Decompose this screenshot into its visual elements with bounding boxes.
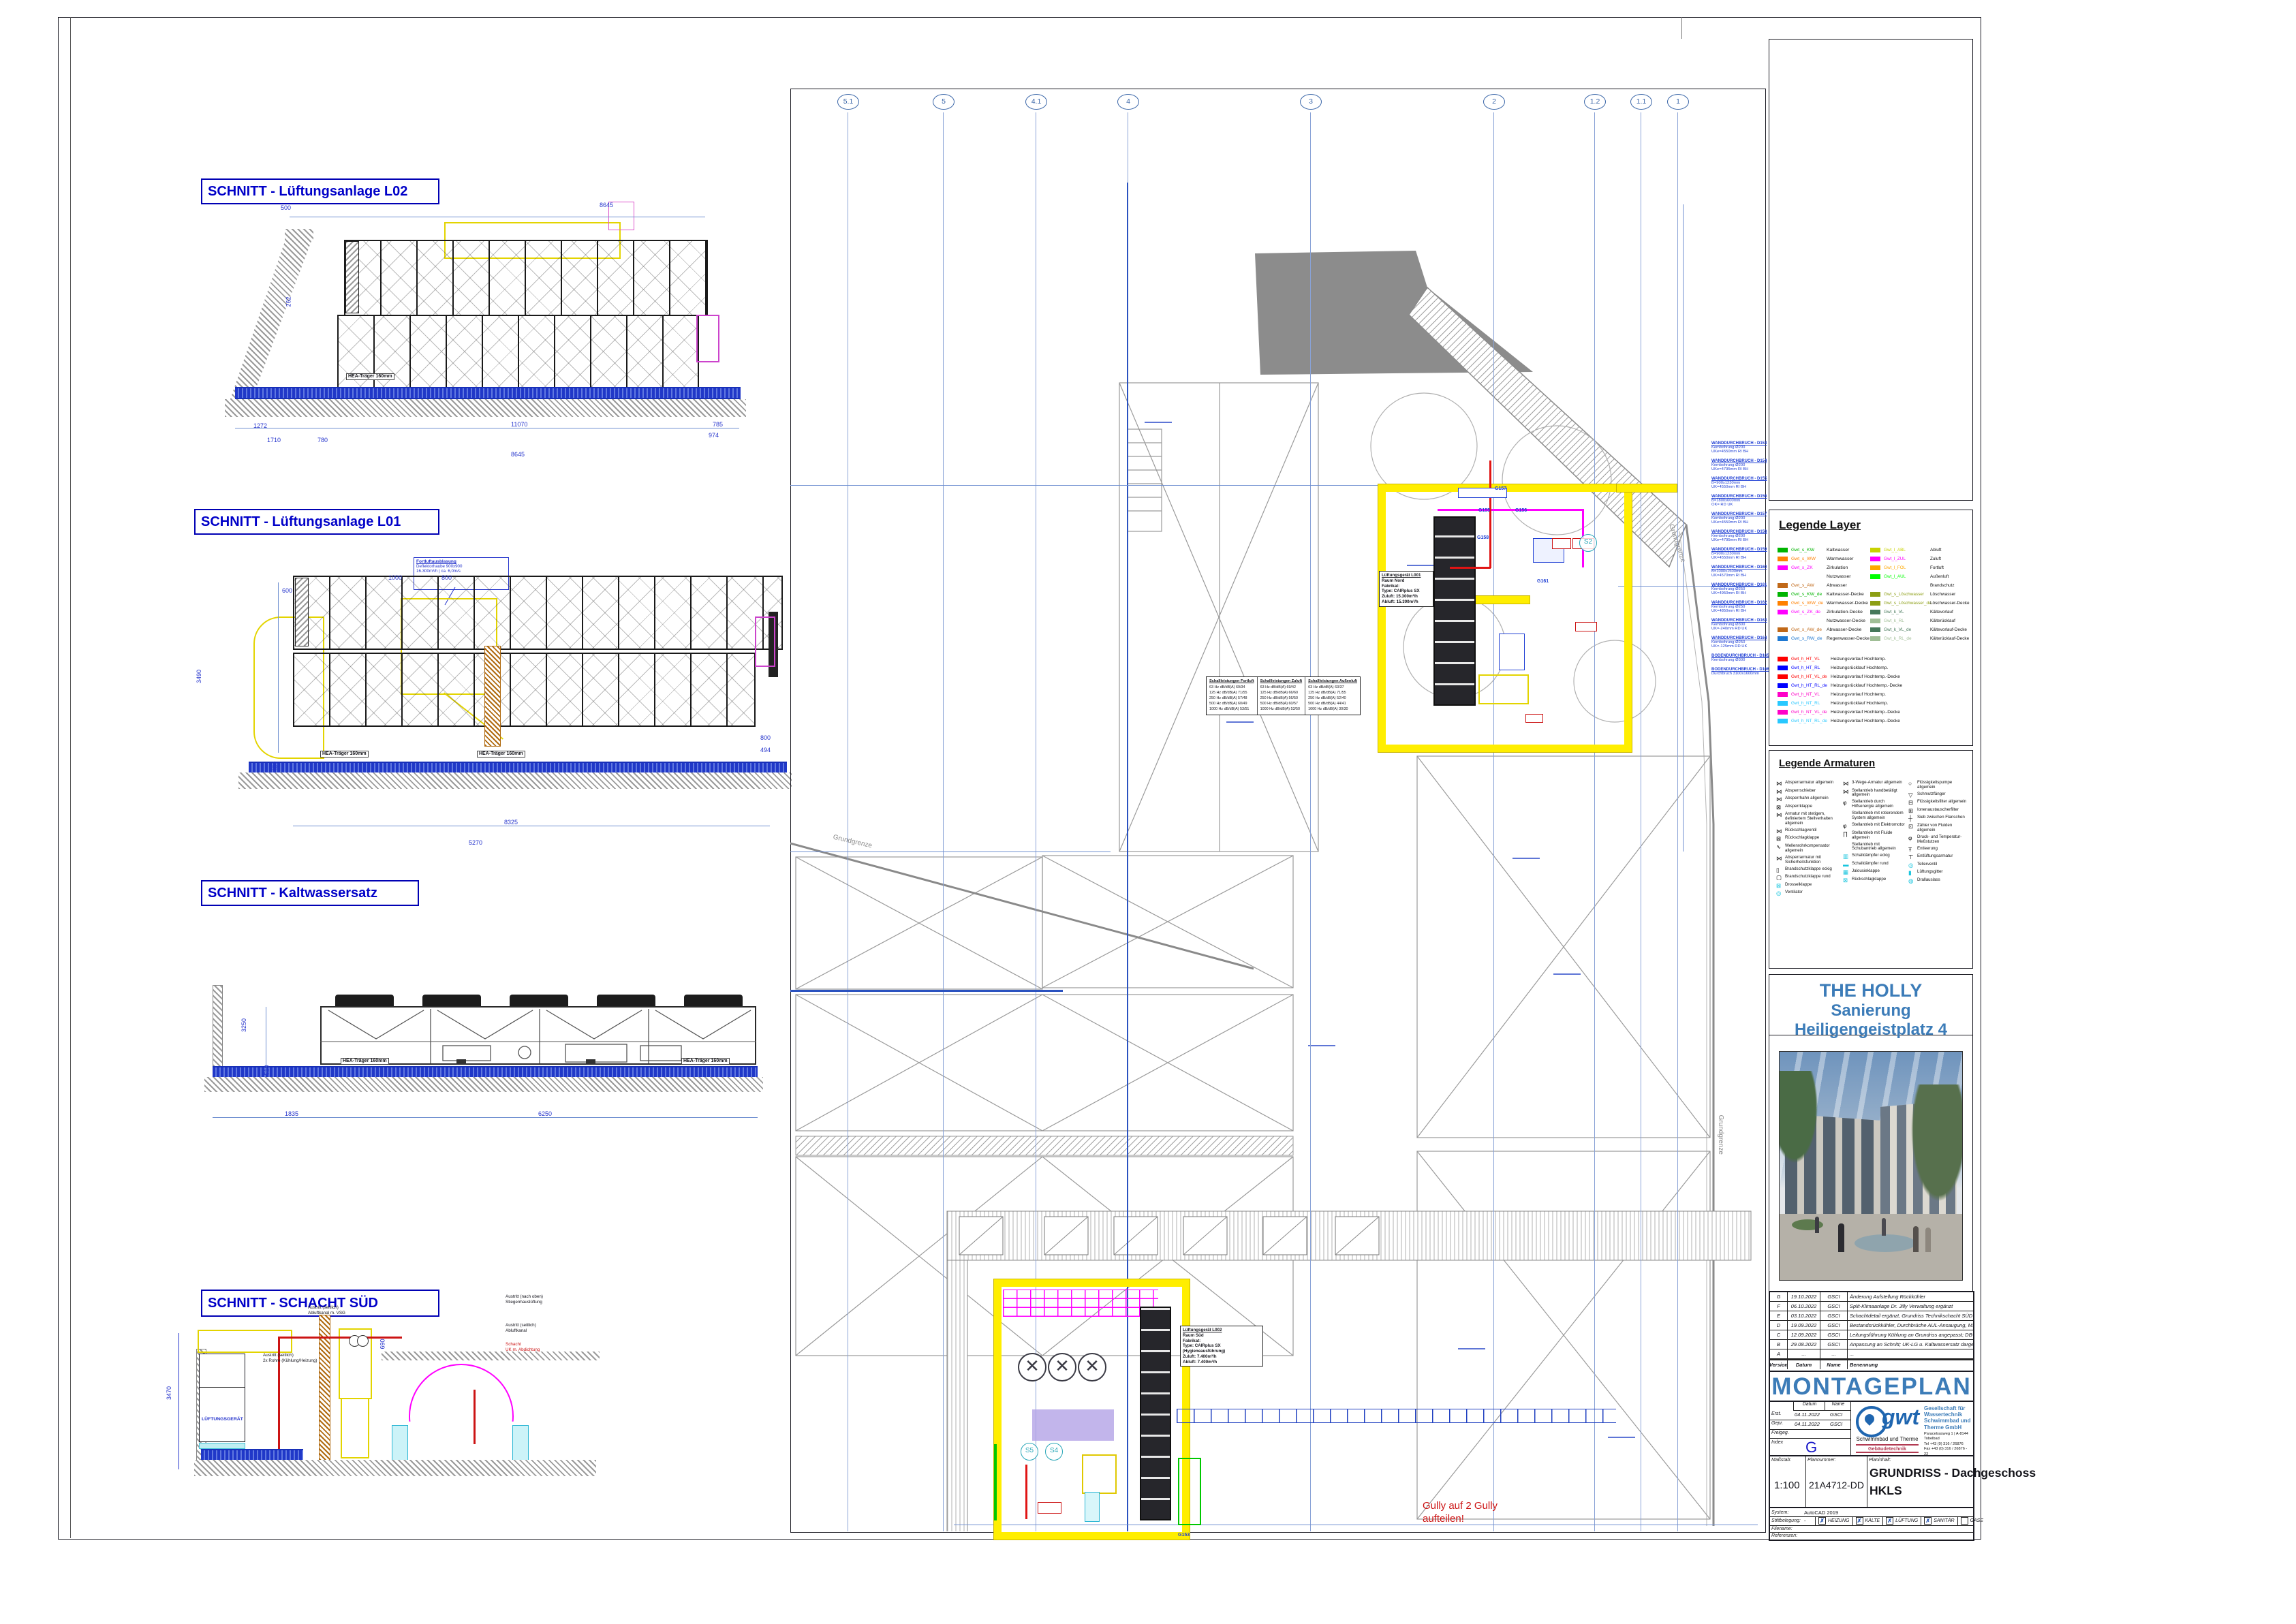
durchbruch-entry: WANDDURCHBRUCH - D163 Kernbohrung Ø300 U… (1711, 619, 1763, 631)
lower-right-roof (1417, 756, 1710, 1519)
layer-swatch (1870, 636, 1880, 641)
durchbruch-entry: WANDDURCHBRUCH - D156 B=1800x600mm OK= R… (1711, 495, 1763, 507)
trade-checkbox: ✗ (1886, 1517, 1893, 1525)
section-title-l02: SCHNITT - Lüftungsanlage L02 (201, 178, 439, 204)
yellow-duct (1478, 674, 1529, 704)
green-duct (994, 1444, 997, 1520)
beam-label: HEA-Träger 160mm (477, 751, 525, 758)
axis-bubble: 3 (1300, 94, 1322, 110)
revision-table: G 19.10.2022 GSCI Änderung Aufstellung R… (1769, 1291, 1974, 1373)
legend-layer-box: Legende Layer Gwt_s_KW Kaltwasser Gwt_s_… (1769, 510, 1973, 746)
magenta-pipe-h (1438, 509, 1583, 511)
chimney-shaft (484, 646, 501, 747)
plan-roof-linework (790, 89, 1765, 1531)
grid-line (790, 852, 1111, 852)
armatur-icon: ⋈ (1843, 789, 1852, 798)
bsk-label (1525, 714, 1543, 723)
meta-rows: System: AutoCAD 2019 Stiftbelegung: - ✗ … (1769, 1507, 1974, 1541)
axis-bubble: 1.1 (1630, 94, 1652, 110)
water-feature (1855, 1234, 1916, 1252)
armaturen-col3: ○ Flüssigkeitspumpe allgemein ▽ Schmutzf… (1908, 781, 1968, 886)
yellow-riser-low (341, 1398, 369, 1458)
layer-swatch (1778, 627, 1788, 632)
chiller-body (320, 1006, 756, 1065)
durchbruch-entry: WANDDURCHBRUCH - D158 Kernbohrung Ø200 U… (1711, 530, 1763, 542)
referenzen-row: Referenzen: (1770, 1532, 1973, 1540)
armatur-icon: ⋈ (1776, 856, 1785, 865)
layer-swatch (1778, 583, 1788, 588)
purple-unit-outline (755, 616, 775, 667)
cyan-duct (1085, 1492, 1100, 1522)
yellow-partition (1472, 596, 1530, 604)
ahu-l001 (1433, 516, 1476, 706)
trade-item: ✗ HEIZUNG (1815, 1516, 1852, 1525)
revision-row: A ... ... ... (1770, 1349, 1973, 1359)
armatur-icon: φ (1843, 800, 1852, 809)
layer-swatch (1870, 592, 1880, 597)
axis-line (1641, 112, 1641, 1531)
bsk-label (1575, 622, 1597, 631)
armatur-icon (1843, 811, 1852, 821)
schall-col: Schallleistungen Fortluft 63 Hz dB/dB(A)… (1207, 677, 1258, 715)
filter-strip (345, 241, 359, 313)
col-name: Name (1825, 1402, 1851, 1411)
dim-line (235, 428, 739, 428)
armatur-icon: ▥ (1843, 854, 1852, 860)
durchbruch-entry: BODENDURCHBRUCH - D165 Kernbohrung Ø300 (1711, 654, 1763, 662)
beam-label: HEA-Träger 160mm (346, 373, 394, 380)
layer-swatch (1778, 692, 1788, 697)
yellow-duct (1082, 1454, 1117, 1494)
equip-label-l001: Lüftungsgerät L001Raum NordFabrikat:Type… (1379, 571, 1433, 607)
index-value: G (1805, 1439, 1817, 1456)
reserved-box (1769, 39, 1973, 501)
layer-swatch (1870, 574, 1880, 579)
armatur-icon: ⋈ (1776, 796, 1785, 802)
ground-hatch (225, 399, 746, 417)
trade-checkbox: ✗ (1924, 1517, 1932, 1525)
plannummer-cell: Plannummer: 21A4712-DD (1805, 1456, 1867, 1508)
ground-hatch (238, 772, 792, 789)
company-name2: Schwimmbad und Therme GmbH (1924, 1418, 1972, 1430)
armatur-icon: ⊠ (1776, 883, 1785, 889)
layer-swatch (1778, 557, 1788, 561)
dim-line (293, 826, 770, 826)
layer-swatch (1778, 601, 1788, 606)
plan-content-1: GRUNDRISS - Dachgeschoss (1870, 1466, 2036, 1480)
gwt-logo: gwt Schwimmbad und Therme Gebäudetechnik (1856, 1405, 1919, 1454)
fan-block (684, 995, 743, 1006)
armatur-icon: ▬ (1843, 862, 1852, 868)
armatur-icon: ⋈ (1776, 789, 1785, 795)
armatur-icon: ⋈ (1776, 828, 1785, 834)
rueckkuehler-fan: ✕ (1018, 1353, 1046, 1381)
person (1815, 1217, 1819, 1233)
plan-number: 21A4712-DD (1809, 1480, 1864, 1490)
trim-line (70, 17, 71, 1538)
wall-cap (285, 229, 313, 240)
layer-swatch (1778, 710, 1788, 715)
layer-swatch (1778, 565, 1788, 570)
armatur-icon: ▦ (1843, 869, 1852, 875)
armatur-icon: ┼ (1908, 815, 1917, 822)
logo-wordmark: gwt (1882, 1405, 1919, 1430)
person (1925, 1228, 1931, 1252)
armatur-icon: ▮ (1908, 870, 1917, 876)
armatur-icon: φ (1908, 835, 1917, 845)
layer-swatch (1778, 683, 1788, 688)
armatur-icon: ∏ (1843, 831, 1852, 841)
fan-block (422, 995, 481, 1006)
project-name: THE HOLLY (1769, 980, 1972, 1001)
dim-line (213, 1117, 758, 1118)
revision-header: Version Datum Name Benennung (1770, 1359, 1973, 1369)
axis-line (943, 112, 944, 1531)
durchbruch-entry: WANDDURCHBRUCH - D154 Kernbohrung Ø200 U… (1711, 459, 1763, 471)
filter-strip (295, 578, 309, 646)
device-label: LÜFTUNGSGERÄT (202, 1417, 243, 1422)
legend-layer-right: Gwt_l_ABL Abluft Gwt_l_ZUL Zuluft Gwt_l_… (1870, 546, 1971, 643)
section-title-kws-text: SCHNITT - Kaltwassersatz (208, 886, 377, 901)
grid-line-heavy (790, 990, 1063, 992)
section-title-l02-text: SCHNITT - Lüftungsanlage L02 (208, 184, 407, 200)
legend-layer-title: Legende Layer (1779, 518, 1861, 532)
rueckkuehler-fan: ✕ (1078, 1353, 1106, 1381)
ground-hatch (194, 1460, 596, 1476)
tree (1779, 1071, 1822, 1173)
armaturen-col2: ⋈ 3-Wege-Armatur allgemein ⋈ Stellantrie… (1843, 781, 1906, 885)
trade-item: ✗ LÜFTUNG (1882, 1516, 1921, 1525)
durchbruch-entry: WANDDURCHBRUCH - D157 Kernbohrung Ø200 U… (1711, 512, 1763, 525)
purple-unit-outline (696, 315, 719, 362)
trade-checkbox (1961, 1517, 1968, 1525)
layer-swatch (1778, 674, 1788, 679)
revision-row: F 06.10.2022 GSCI Split-Klimaanlage Dr. … (1770, 1302, 1973, 1311)
revision-row: E 03.10.2022 GSCI Schachtdetail ergänzt,… (1770, 1311, 1973, 1321)
upper-left-roof (1119, 383, 1318, 852)
plan-type-text: MONTAGEPLAN (1771, 1373, 1972, 1401)
company-addr: Paracelsusweg 1 | A-8144 Tobelbad (1924, 1432, 1972, 1442)
person (1838, 1223, 1844, 1252)
yellow-walls (1378, 484, 1632, 752)
trade-checkbox: ✗ (1856, 1517, 1863, 1525)
durchbruch-entry: WANDDURCHBRUCH - D155 B=900x1230mm UK=45… (1711, 477, 1763, 489)
project-box: THE HOLLY Sanierung Heiligengeistplatz 4 (1769, 974, 1973, 1292)
grid-line (790, 485, 1380, 486)
axis-line (1594, 112, 1595, 1531)
schall-col: Schallleistungen Außenluft 63 Hz dB/dB(A… (1305, 677, 1360, 715)
armatur-icon: ⊟ (1908, 800, 1917, 806)
grid-line-v (1683, 204, 1684, 852)
armatur-icon: ⋈ (1843, 781, 1852, 787)
red-pipe-v (1489, 460, 1491, 568)
section-title-l01: SCHNITT - Lüftungsanlage L01 (194, 509, 439, 535)
magenta-grid (1003, 1290, 1158, 1317)
trade-label: HEIZUNG (1828, 1518, 1850, 1523)
armatur-icon: ▢ (1776, 875, 1785, 881)
logo-drop (1863, 1412, 1876, 1426)
armatur-icon: ⊠ (1776, 836, 1785, 842)
bsk-label (1552, 538, 1571, 549)
revision-row: G 19.10.2022 GSCI Änderung Aufstellung R… (1770, 1292, 1973, 1302)
schall-col: Schallleistungen Zuluft 63 Hz dB/dB(A) 6… (1258, 677, 1306, 715)
axis-bubble: 5 (933, 94, 955, 110)
trade-item: ✗ SANITÄR (1921, 1516, 1957, 1525)
boundary-hatch (1409, 287, 1713, 1526)
line (1770, 1429, 1850, 1430)
logo-sub2: Gebäudetechnik (1856, 1444, 1919, 1453)
fan-block (597, 995, 655, 1006)
ledge-hatch (382, 1352, 600, 1360)
durchbruch-entry: BODENDURCHBRUCH - D166 Durchbruch 3100x1… (1711, 668, 1763, 676)
section-title-schacht-text: SCHNITT - SCHACHT SÜD (208, 1296, 378, 1311)
fan-block (335, 995, 394, 1006)
layer-swatch (1870, 557, 1880, 561)
roof-band (796, 1136, 1293, 1155)
dim-square-band (1177, 1409, 1616, 1423)
scale-value: 1:100 (1774, 1480, 1800, 1491)
massstab-cell: Maßstab: 1:100 (1770, 1456, 1806, 1508)
building-rendering (1779, 1051, 1963, 1281)
revision-row: B 29.08.2022 GSCI Anpassung an Schnitt; … (1770, 1340, 1973, 1349)
person (1882, 1218, 1886, 1236)
layer-swatch (1778, 592, 1788, 597)
note-title: Fortluftausblasung (416, 559, 506, 564)
plan-id-block: Maßstab: 1:100 Plannummer: 21A4712-DD Pl… (1769, 1455, 1974, 1510)
axis-bubble: 4 (1117, 94, 1139, 110)
layer-swatch (1870, 548, 1880, 552)
armatur-icon: φ (1843, 823, 1852, 829)
ground-hatch (204, 1077, 763, 1092)
axis-line (1310, 112, 1311, 1531)
armatur-icon: ▽ (1908, 792, 1917, 798)
layer-swatch (1870, 583, 1880, 588)
system-value: AutoCAD 2019 (1804, 1510, 1838, 1516)
pipe-circles (357, 1335, 369, 1347)
armatur-icon: ⊠ (1776, 805, 1785, 811)
armatur-icon: ◎ (1776, 890, 1785, 896)
section-title-kws: SCHNITT - Kaltwassersatz (201, 880, 419, 906)
line (200, 1387, 245, 1388)
layer-swatch (1870, 610, 1880, 614)
armatur-icon: ⊞ (1908, 808, 1917, 814)
col-datum: Datum (1793, 1402, 1825, 1411)
armatur-icon: ◍ (1908, 878, 1917, 884)
layer-swatch (1778, 619, 1788, 623)
revision-row: D 19.09.2022 GSCI Bestandsrückkühler, Du… (1770, 1321, 1973, 1330)
trade-label: LÜFTUNG (1895, 1518, 1918, 1523)
ahu-l002 (1140, 1307, 1171, 1520)
rueckkuehler-fan: ✕ (1048, 1353, 1076, 1381)
durchbruch-entry: WANDDURCHBRUCH - D153 Kernbohrung Ø200 U… (1711, 441, 1763, 454)
red-pipe-h (1450, 567, 1491, 569)
axis-bubble: 1.2 (1584, 94, 1606, 110)
armatur-icon: ⊠ (1843, 877, 1852, 884)
trade-label: KÄLTE (1865, 1518, 1880, 1523)
layer-swatch (1870, 565, 1880, 570)
cyan-pad (199, 1443, 245, 1449)
axis-bubble: 2 (1483, 94, 1505, 110)
durchbruch-entry: WANDDURCHBRUCH - D159 B=900x1230mm UK=45… (1711, 548, 1763, 560)
armatur-icon: ▯ (1776, 867, 1785, 873)
axis-bubble: 4.1 (1025, 94, 1047, 110)
layer-swatch (1778, 636, 1788, 641)
project-subtitle: Sanierung Heiligengeistplatz 4 (1769, 1001, 1972, 1040)
armatur-icon: ⋈ (1776, 812, 1785, 826)
trade-label: SANITÄR (1934, 1518, 1954, 1523)
armaturen-col1: ⋈ Absperrarmatur allgemein ⋈ Absperrschi… (1776, 781, 1840, 899)
purple-zone (1032, 1409, 1114, 1441)
layer-swatch (1778, 574, 1788, 579)
company-name1: Gesellschaft für Wassertechnik (1924, 1405, 1972, 1418)
yellow-wall-stub (1617, 484, 1677, 492)
stift-row: Stiftbelegung: - ✗ HEIZUNG ✗ KÄLTE ✗ LÜF… (1770, 1516, 1973, 1526)
signature-block: Datum Name Erst. 04.11.2022 GSCI Gepr. 0… (1769, 1401, 1974, 1458)
index-label: Index (1771, 1440, 1783, 1445)
layer-swatch (1778, 548, 1788, 552)
durchbruch-entry: WANDDURCHBRUCH - D162 Kernbohrung Ø250 U… (1711, 601, 1763, 613)
floor-slab (235, 387, 741, 399)
trade-item: ✗ KÄLTE (1852, 1516, 1883, 1525)
plan-type-banner: MONTAGEPLAN (1769, 1371, 1974, 1403)
axis-line (848, 112, 848, 1531)
logo-sub: Schwimmbad und Therme (1856, 1436, 1919, 1442)
equip-label-l002: Lüftungsgerät L002Raum SüdFabrikat:Type:… (1180, 1326, 1263, 1367)
armatur-icon (1843, 843, 1852, 852)
drawing-sheet: SCHNITT - Lüftungsanlage L02 HEA-Träger … (0, 0, 2296, 1624)
durchbruch-entry: WANDDURCHBRUCH - D164 Kernbohrung Ø250 U… (1711, 636, 1763, 649)
armatur-icon: ⊤ (1908, 854, 1917, 860)
armatur-icon: Ŧ (1908, 847, 1917, 853)
legend-armaturen-title: Legende Armaturen (1779, 758, 1875, 769)
layer-swatch (1870, 627, 1880, 632)
dim-line (290, 217, 705, 217)
gully-note: Gully auf 2 Gully aufteilen! (1423, 1500, 1498, 1526)
armatur-icon: ⊡ (1908, 824, 1917, 833)
layer-swatch (1778, 657, 1788, 661)
dim-line (179, 1333, 179, 1469)
beam-label: HEA-Träger 160mm (341, 1058, 389, 1065)
company-tel: Tel +43 (0) 316 / 26876 (1924, 1442, 1972, 1448)
ahu-bottom-row (293, 653, 756, 727)
layer-swatch (1778, 666, 1788, 670)
blue-duct (1499, 634, 1525, 670)
durchbruch-entry: WANDDURCHBRUCH - D160 B=1000x1500mm UK=4… (1711, 565, 1763, 578)
trade-label: GASE (1970, 1518, 1983, 1523)
layer-swatch (1870, 619, 1880, 623)
legend-armaturen-box: Legende Armaturen ⋈ Absperrarmatur allge… (1769, 750, 1973, 969)
axis-line (1493, 112, 1494, 1531)
armatur-icon: ∿ (1776, 844, 1785, 854)
red-label (1038, 1502, 1061, 1514)
signature-table: Datum Name Erst. 04.11.2022 GSCI Gepr. 0… (1770, 1402, 1851, 1456)
trade-item: GASE (1957, 1516, 1986, 1525)
durchbruch-entry: WANDDURCHBRUCH - D161 Kernbohrung Ø250 U… (1711, 583, 1763, 595)
legend-layer-heating: Gwt_h_HT_VL Heizungsvorlauf Hochtemp. Gw… (1778, 655, 1941, 725)
revision-row: C 12.09.2022 GSCI Leitungsführung Kühlun… (1770, 1330, 1973, 1340)
layer-swatch (1778, 610, 1788, 614)
revision-rows: G 19.10.2022 GSCI Änderung Aufstellung R… (1770, 1292, 1973, 1359)
planinhalt-cell: Planinhalt: GRUNDRISS - Dachgeschoss HKL… (1867, 1456, 1973, 1508)
axis-bubble: 1 (1667, 94, 1689, 110)
red-pipe-h (278, 1337, 402, 1339)
armatur-icon: ◎ (1908, 862, 1917, 869)
plan-content-2: HKLS (1870, 1484, 1902, 1498)
red-pipe-v (1025, 1465, 1027, 1519)
armatur-icon: ○ (1908, 781, 1917, 790)
dim-line (278, 582, 279, 753)
armatur-icon: ⋈ (1776, 781, 1785, 787)
property-line (790, 843, 1254, 969)
section-title-l01-text: SCHNITT - Lüftungsanlage L01 (201, 514, 401, 530)
line (1770, 1420, 1850, 1420)
lueftungsgeraet-box: LÜFTUNGSGERÄT (199, 1354, 245, 1442)
schall-table: Schallleistungen Fortluft 63 Hz dB/dB(A)… (1206, 676, 1361, 715)
note-line: 16.300m³/h | ca. 6,0m/s (416, 569, 506, 574)
fold-mark (1681, 17, 1682, 39)
person (1913, 1226, 1919, 1252)
layer-swatch (1778, 719, 1788, 723)
beam-label: HEA-Träger 160mm (320, 751, 369, 758)
layer-swatch (1778, 701, 1788, 706)
project-title-area: THE HOLLY Sanierung Heiligengeistplatz 4 (1769, 975, 1972, 1035)
beam-label: HEA-Träger 160mm (681, 1058, 730, 1065)
note-line: Deflektorhaube 900x900 (416, 564, 506, 569)
tree (1906, 1084, 1963, 1214)
ahu-top-row (344, 240, 708, 316)
green-duct-outline (1178, 1458, 1201, 1525)
axis-bubble: 5.1 (837, 94, 859, 110)
fan-block (510, 995, 568, 1006)
ahu-top-row (293, 576, 783, 650)
legend-layer-left: Gwt_s_KW Kaltwasser Gwt_s_WW Warmwasser … (1778, 546, 1866, 643)
durchbruch-list: WANDDURCHBRUCH - D153 Kernbohrung Ø200 U… (1711, 441, 1765, 681)
layer-swatch (1870, 601, 1880, 606)
trade-checkboxes: ✗ HEIZUNG ✗ KÄLTE ✗ LÜFTUNG ✗ SANITÄR GA… (1815, 1516, 1986, 1525)
axis-line (1677, 112, 1678, 1531)
trade-checkbox: ✗ (1818, 1517, 1826, 1525)
